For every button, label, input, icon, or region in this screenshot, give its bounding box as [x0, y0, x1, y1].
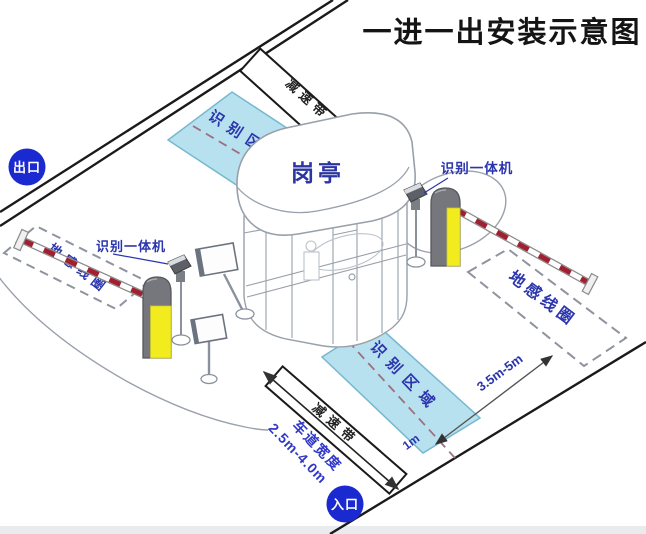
exit-badge-label: 出口 [13, 160, 41, 175]
camera-left-label: 识别一体机 [96, 239, 166, 254]
guard-booth: 岗亭 [237, 113, 415, 347]
bottom-strip [0, 526, 646, 534]
exit-badge: 出口 [9, 149, 46, 186]
installation-diagram-page: 减速带 减速带 车道宽度 2.5m-4.0m 识别区域 识别区域 1m 地感线圈 [0, 0, 646, 534]
entrance-badge: 入口 [327, 486, 364, 523]
barrier-machine-right [431, 188, 460, 266]
booth-label: 岗亭 [291, 160, 345, 186]
diagram-canvas: 减速带 减速带 车道宽度 2.5m-4.0m 识别区域 识别区域 1m 地感线圈 [0, 0, 646, 534]
camera-right-label: 识别一体机 [441, 160, 514, 176]
barrier-machine-left [143, 277, 171, 358]
page-title: 一进一出安装示意图 [362, 15, 641, 49]
entrance-badge-label: 入口 [331, 497, 359, 512]
